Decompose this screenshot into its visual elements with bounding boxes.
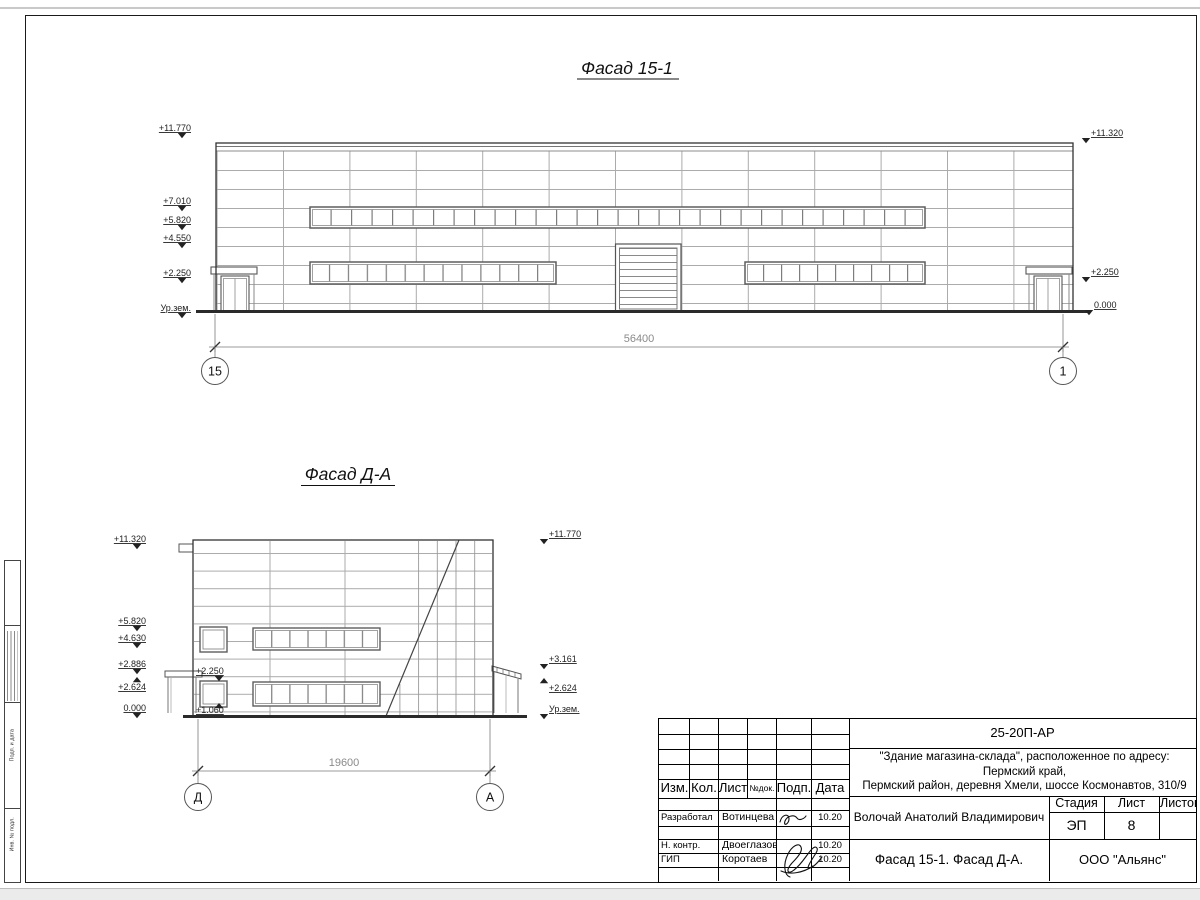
signatures (659, 719, 1198, 884)
strip-divider (5, 808, 20, 809)
sheet-bottom-edge (0, 888, 1200, 900)
strip-label: Подп. и дата (10, 747, 16, 762)
approval-stamp-text (7, 631, 18, 701)
title-block: Изм. Кол. Лист №док. Подп. Дата Разработ… (658, 718, 1197, 883)
signature-votintseva (780, 815, 806, 824)
strip-label: Инв. № подл. (10, 837, 16, 852)
gost-side-strip: Подп. и дата Инв. № подл. (4, 560, 21, 883)
drawing-sheet: Подп. и дата Инв. № подл. (0, 0, 1200, 900)
strip-divider (5, 702, 20, 703)
sheet-top-edge (0, 7, 1200, 9)
signature-flourish (785, 845, 822, 877)
strip-divider (5, 625, 20, 626)
